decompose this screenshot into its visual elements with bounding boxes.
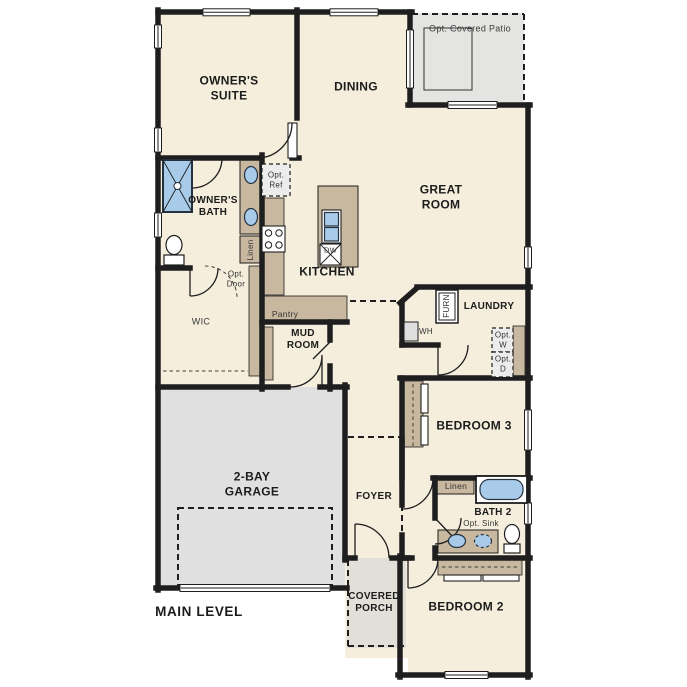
toilet bbox=[164, 236, 184, 266]
water-heater bbox=[404, 322, 418, 341]
window bbox=[155, 25, 162, 48]
floor-plan-canvas bbox=[0, 0, 687, 687]
label-bedroom3: BEDROOM 3 bbox=[436, 419, 511, 434]
garage-door bbox=[180, 585, 330, 592]
window bbox=[448, 102, 497, 109]
window bbox=[525, 410, 532, 450]
label-dining: DINING bbox=[334, 80, 378, 95]
label-mud-room: MUD ROOM bbox=[282, 328, 324, 352]
label-laundry: LAUNDRY bbox=[464, 301, 515, 313]
window bbox=[445, 672, 488, 679]
label-opt-ref: Opt. Ref bbox=[264, 170, 288, 190]
label-owners-suite: OWNER'S SUITE bbox=[189, 73, 269, 102]
label-great-room: GREAT ROOM bbox=[413, 182, 469, 211]
label-opt-sink: Opt. Sink bbox=[463, 519, 499, 529]
label-pantry: Pantry bbox=[272, 309, 298, 319]
label-garage: 2-BAY GARAGE bbox=[222, 469, 282, 498]
bedroom2-closet-door bbox=[444, 575, 481, 581]
window bbox=[525, 503, 532, 524]
label-linen-owners-bath: Linen bbox=[246, 239, 256, 260]
label-foyer: FOYER bbox=[356, 491, 392, 503]
laundry-counter bbox=[513, 326, 525, 378]
bedroom3-closet-door bbox=[421, 384, 428, 413]
bedroom3-closet-door bbox=[421, 416, 428, 445]
stove bbox=[262, 226, 285, 252]
label-linen-bath2: Linen bbox=[445, 480, 467, 490]
vanity-sink bbox=[245, 209, 258, 226]
wic-shelf bbox=[249, 266, 260, 376]
label-opt-washer: Opt. W bbox=[492, 330, 514, 350]
label-opt-covered-patio: Opt. Covered Patio bbox=[429, 24, 511, 35]
island-sink bbox=[322, 210, 341, 243]
label-covered-porch: COVERED PORCH bbox=[345, 591, 403, 615]
toilet bbox=[504, 525, 520, 554]
bath2-opt-sink bbox=[475, 535, 492, 548]
bathtub bbox=[476, 476, 527, 503]
label-bedroom2: BEDROOM 2 bbox=[428, 600, 503, 615]
bath2-sink bbox=[449, 535, 466, 548]
label-wic: WIC bbox=[192, 317, 210, 328]
label-dishwasher: DW bbox=[324, 245, 337, 254]
window bbox=[525, 247, 532, 268]
floor-plan: OWNER'S SUITE DINING Opt. Covered Patio … bbox=[0, 0, 687, 687]
window bbox=[203, 9, 250, 16]
window bbox=[155, 128, 162, 152]
window bbox=[155, 213, 162, 237]
vanity-sink bbox=[245, 167, 258, 184]
label-opt-door: Opt. Door bbox=[222, 269, 250, 289]
label-furnace: FURN bbox=[442, 294, 452, 317]
label-main-level: MAIN LEVEL bbox=[155, 604, 243, 620]
window bbox=[407, 30, 414, 88]
label-owners-bath: OWNER'S BATH bbox=[183, 195, 243, 219]
label-opt-dryer: Opt. D bbox=[492, 354, 514, 374]
label-kitchen: KITCHEN bbox=[299, 265, 354, 280]
bedroom2-closet-door bbox=[483, 575, 519, 581]
label-bath2: BATH 2 bbox=[474, 507, 511, 519]
window bbox=[330, 9, 378, 16]
label-water-heater: WH bbox=[419, 327, 433, 337]
